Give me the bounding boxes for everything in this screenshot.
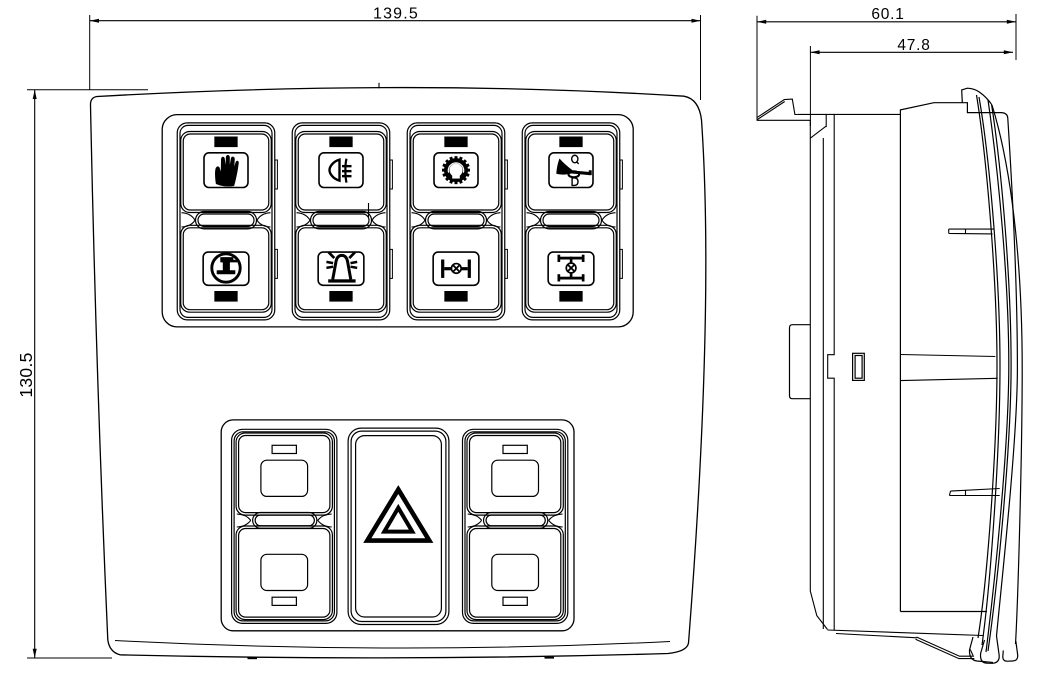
svg-text:47.8: 47.8 — [897, 37, 930, 54]
svg-text:139.5: 139.5 — [373, 6, 419, 23]
svg-text:60.1: 60.1 — [871, 6, 904, 23]
svg-text:130.5: 130.5 — [16, 352, 36, 397]
